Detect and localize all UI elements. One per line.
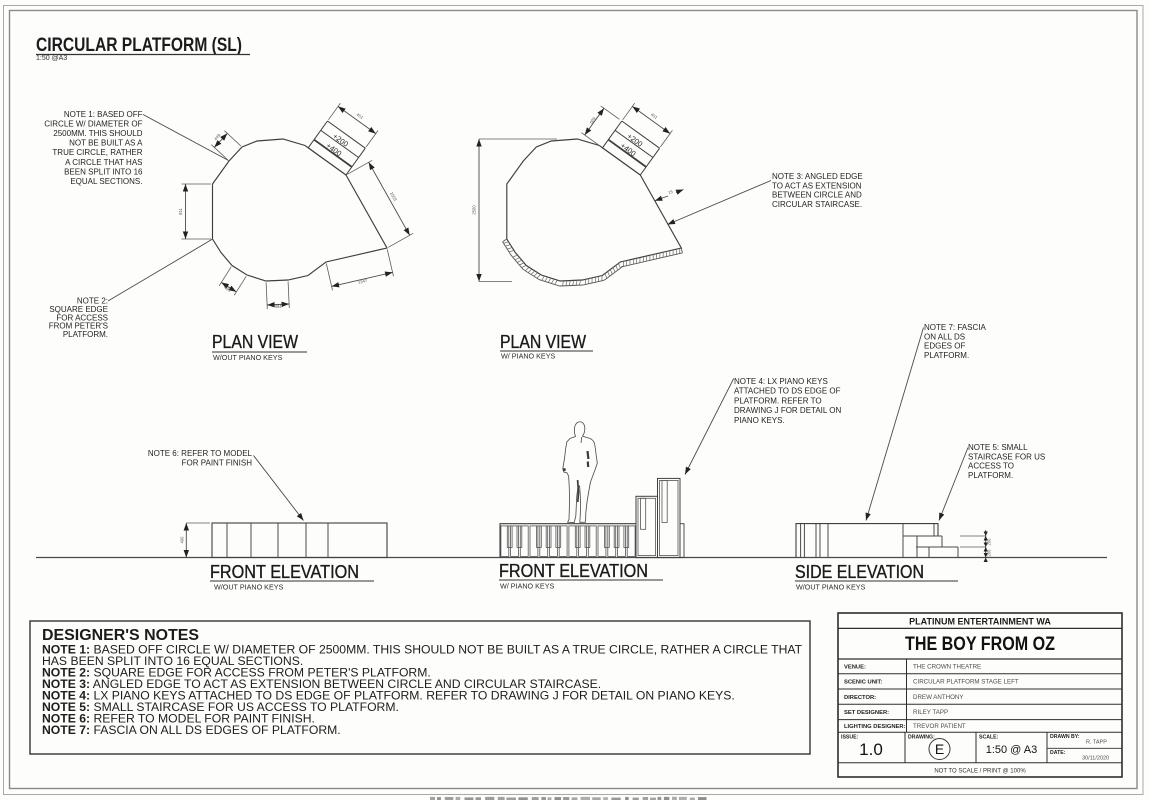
svg-text:W/ PIANO KEYS: W/ PIANO KEYS <box>500 582 555 591</box>
svg-text:FRONT ELEVATION: FRONT ELEVATION <box>499 561 648 581</box>
svg-text:PLAN VIEW: PLAN VIEW <box>500 332 586 352</box>
svg-text:ACCESS TO: ACCESS TO <box>968 462 1014 471</box>
svg-text:A CIRCLE THAT HAS: A CIRCLE THAT HAS <box>65 158 142 167</box>
svg-text:DATE:: DATE: <box>1050 750 1066 756</box>
svg-text:PLATFORM.: PLATFORM. <box>968 471 1013 480</box>
svg-text:W/OUT PIANO KEYS: W/OUT PIANO KEYS <box>214 583 284 592</box>
svg-text:ON ALL DS: ON ALL DS <box>924 332 965 341</box>
svg-text:PLATFORM.: PLATFORM. <box>63 330 108 339</box>
svg-text:CIRCULAR STAIRCASE.: CIRCULAR STAIRCASE. <box>772 200 862 209</box>
svg-text:CIRCULAR PLATFORM STAGE LEFT: CIRCULAR PLATFORM STAGE LEFT <box>913 679 1019 686</box>
svg-text:1.0: 1.0 <box>859 740 883 759</box>
svg-text:DREW ANTHONY: DREW ANTHONY <box>913 694 964 701</box>
svg-text:NOT TO SCALE / PRINT @ 100%: NOT TO SCALE / PRINT @ 100% <box>934 769 1026 775</box>
svg-text:SCALE:: SCALE: <box>979 735 999 741</box>
svg-text:1:50 @ A3: 1:50 @ A3 <box>986 744 1038 756</box>
svg-text:FRONT ELEVATION: FRONT ELEVATION <box>210 562 359 582</box>
svg-text:NOTE 5: SMALL: NOTE 5: SMALL <box>968 443 1028 452</box>
svg-text:SIDE ELEVATION: SIDE ELEVATION <box>795 562 924 582</box>
svg-text:200: 200 <box>987 549 992 557</box>
svg-text:LIGHTING DESIGNER:: LIGHTING DESIGNER: <box>844 724 906 730</box>
svg-text:NOTE 1: BASED OFF: NOTE 1: BASED OFF <box>64 110 143 119</box>
svg-text:E: E <box>935 741 944 757</box>
svg-text:SET DESIGNER:: SET DESIGNER: <box>844 710 889 716</box>
svg-text:NOTE 3: ANGLED EDGE: NOTE 3: ANGLED EDGE <box>772 172 863 181</box>
svg-text:DRAWING J FOR DETAIL ON: DRAWING J FOR DETAIL ON <box>734 406 841 415</box>
svg-text:TO ACT AS EXTENSION: TO ACT AS EXTENSION <box>772 181 862 190</box>
svg-text:RILEY TAPP: RILEY TAPP <box>913 709 948 716</box>
svg-text:400: 400 <box>179 536 184 544</box>
svg-text:CIRCULAR PLATFORM (SL): CIRCULAR PLATFORM (SL) <box>36 35 242 56</box>
svg-text:PIANO KEYS.: PIANO KEYS. <box>734 416 785 425</box>
svg-text:DESIGNER'S NOTES: DESIGNER'S NOTES <box>42 627 199 644</box>
svg-text:DRAWN BY:: DRAWN BY: <box>1050 734 1080 740</box>
svg-text:PLATFORM. REFER TO: PLATFORM. REFER TO <box>734 396 822 405</box>
svg-text:PLATFORM.: PLATFORM. <box>924 351 969 360</box>
svg-text:NOTE 6: REFER TO MODEL: NOTE 6: REFER TO MODEL <box>148 449 253 458</box>
svg-text:W/ PIANO KEYS: W/ PIANO KEYS <box>501 352 556 361</box>
svg-text:W/OUT PIANO KEYS: W/OUT PIANO KEYS <box>796 583 866 592</box>
svg-text:TREVOR PATIENT: TREVOR PATIENT <box>913 723 966 730</box>
svg-text:NOTE 4: LX PIANO KEYS: NOTE 4: LX PIANO KEYS <box>734 377 828 386</box>
svg-text:30/11/2020: 30/11/2020 <box>1082 756 1109 762</box>
svg-text:THE CROWN THEATRE: THE CROWN THEATRE <box>913 664 981 671</box>
svg-text:W/OUT PIANO KEYS: W/OUT PIANO KEYS <box>213 353 283 362</box>
svg-text:2500MM. THIS SHOULD: 2500MM. THIS SHOULD <box>53 129 142 138</box>
svg-text:1:50 @A3: 1:50 @A3 <box>36 55 67 62</box>
svg-text:PLAN VIEW: PLAN VIEW <box>212 332 298 352</box>
svg-text:R. TAPP: R. TAPP <box>1086 740 1107 746</box>
svg-text:BEEN SPLIT INTO 16: BEEN SPLIT INTO 16 <box>64 167 143 176</box>
svg-text:VENUE:: VENUE: <box>844 665 866 671</box>
svg-text:SCENIC UNIT:: SCENIC UNIT: <box>844 680 882 686</box>
svg-text:ISSUE:: ISSUE: <box>841 735 859 741</box>
svg-text:DRAWING:: DRAWING: <box>908 735 935 741</box>
svg-text:811: 811 <box>178 207 183 214</box>
svg-text:FOR PAINT FINISH: FOR PAINT FINISH <box>182 459 253 468</box>
svg-text:STAIRCASE FOR US: STAIRCASE FOR US <box>968 452 1045 461</box>
svg-text:EQUAL SECTIONS.: EQUAL SECTIONS. <box>70 177 142 186</box>
svg-text:200: 200 <box>987 538 992 546</box>
svg-text:NOTE 7: FASCIA ON ALL DS EDGES: NOTE 7: FASCIA ON ALL DS EDGES OF PLATFO… <box>42 723 341 737</box>
svg-text:ATTACHED TO DS EDGE OF: ATTACHED TO DS EDGE OF <box>734 387 841 396</box>
svg-text:TRUE CIRCLE, RATHER: TRUE CIRCLE, RATHER <box>52 148 142 157</box>
svg-text:EDGES OF: EDGES OF <box>924 342 965 351</box>
svg-text:494: 494 <box>275 304 283 309</box>
svg-text:CIRCLE W/ DIAMETER OF: CIRCLE W/ DIAMETER OF <box>44 120 142 129</box>
svg-text:DIRECTOR:: DIRECTOR: <box>844 695 876 701</box>
svg-text:THE BOY FROM OZ: THE BOY FROM OZ <box>905 634 1055 655</box>
svg-text:BETWEEN CIRCLE AND: BETWEEN CIRCLE AND <box>772 191 862 200</box>
svg-text:NOT BE BUILT AS A: NOT BE BUILT AS A <box>69 139 143 148</box>
svg-text:2500: 2500 <box>472 205 477 215</box>
svg-text:PLATINUM ENTERTAINMENT WA: PLATINUM ENTERTAINMENT WA <box>909 617 1051 627</box>
svg-text:NOTE 7: FASCIA: NOTE 7: FASCIA <box>924 323 986 332</box>
